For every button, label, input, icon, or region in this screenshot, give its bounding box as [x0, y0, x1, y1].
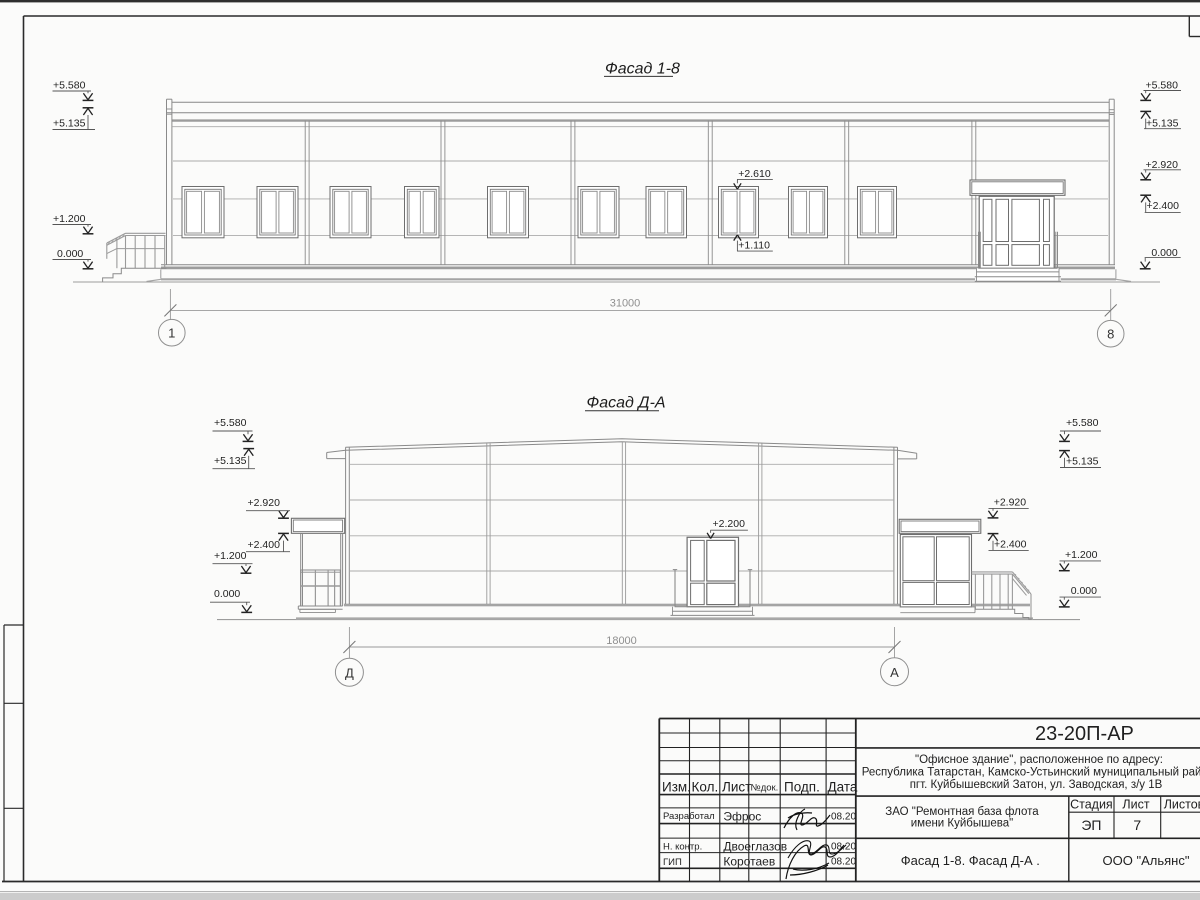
svg-text:Листов: Листов: [1164, 798, 1200, 812]
svg-text:8: 8: [1107, 327, 1114, 342]
svg-text:18000: 18000: [606, 635, 637, 647]
svg-text:Эфрос: Эфрос: [723, 809, 761, 823]
svg-text:Фасад Д-А: Фасад Д-А: [587, 395, 666, 412]
svg-text:+5.135: +5.135: [53, 118, 86, 130]
svg-text:+5.580: +5.580: [214, 417, 247, 429]
svg-text:Фасад 1-8. Фасад Д-А .: Фасад 1-8. Фасад Д-А .: [901, 853, 1040, 868]
svg-text:+2.920: +2.920: [248, 497, 281, 509]
svg-text:0.000: 0.000: [1071, 585, 1097, 597]
svg-text:ЭП: ЭП: [1081, 817, 1101, 833]
svg-text:"Офисное здание", расположенно: "Офисное здание", расположенное по адрес…: [915, 754, 1163, 766]
svg-text:+5.135: +5.135: [1146, 118, 1179, 130]
svg-text:08.20: 08.20: [831, 857, 856, 868]
svg-text:+1.200: +1.200: [53, 213, 86, 225]
svg-text:+2.920: +2.920: [1146, 159, 1179, 171]
svg-text:Республика Татарстан, Камско-У: Республика Татарстан, Камско-Устьинский …: [862, 766, 1200, 778]
svg-text:+5.580: +5.580: [53, 80, 86, 92]
svg-text:пгт. Куйбышевский Затон, ул. З: пгт. Куйбышевский Затон, ул. Заводская, …: [910, 779, 1163, 791]
svg-text:+1.200: +1.200: [1065, 549, 1098, 561]
svg-text:+5.580: +5.580: [1146, 80, 1179, 92]
svg-text:Д: Д: [345, 665, 354, 680]
svg-text:Подп.: Подп.: [784, 780, 820, 795]
svg-text:Лист: Лист: [722, 780, 751, 795]
svg-text:+2.400: +2.400: [1147, 200, 1180, 212]
svg-text:+2.610: +2.610: [738, 168, 771, 180]
svg-text:+2.400: +2.400: [994, 539, 1027, 551]
svg-text:+5.580: +5.580: [1066, 417, 1099, 429]
svg-text:Изм.: Изм.: [662, 780, 691, 795]
svg-text:ООО "Альянс": ООО "Альянс": [1103, 853, 1190, 868]
svg-text:ГИП: ГИП: [663, 857, 682, 868]
svg-text:+5.135: +5.135: [1066, 456, 1099, 468]
svg-text:+1.110: +1.110: [738, 240, 770, 252]
svg-text:Н. контр.: Н. контр.: [663, 841, 702, 852]
svg-text:№док.: №док.: [751, 783, 779, 794]
svg-text:+2.400: +2.400: [248, 539, 281, 551]
svg-text:23-20П-АР: 23-20П-АР: [1035, 723, 1134, 745]
svg-text:+1.200: +1.200: [214, 550, 247, 562]
svg-text:имени Куйбышева": имени Куйбышева": [911, 817, 1014, 829]
svg-text:1: 1: [168, 326, 175, 341]
svg-text:Лист: Лист: [1122, 798, 1149, 812]
svg-text:А: А: [890, 665, 899, 680]
svg-text:Кол.: Кол.: [692, 780, 719, 795]
svg-text:0.000: 0.000: [57, 248, 83, 260]
svg-text:Коротаев: Коротаев: [723, 855, 775, 869]
svg-text:+5.135: +5.135: [214, 455, 247, 467]
svg-text:+2.200: +2.200: [713, 518, 746, 530]
svg-text:+2.920: +2.920: [994, 497, 1027, 509]
svg-text:08.20: 08.20: [831, 811, 856, 822]
svg-text:Фасад 1-8: Фасад 1-8: [605, 61, 680, 78]
svg-text:Стадия: Стадия: [1070, 798, 1113, 812]
svg-text:Двоеглазов: Двоеглазов: [723, 840, 787, 854]
svg-text:Разработал: Разработал: [663, 811, 715, 822]
svg-text:31000: 31000: [610, 298, 641, 310]
svg-text:Дата: Дата: [828, 780, 858, 795]
svg-text:7: 7: [1133, 817, 1141, 833]
svg-text:0.000: 0.000: [214, 588, 240, 600]
